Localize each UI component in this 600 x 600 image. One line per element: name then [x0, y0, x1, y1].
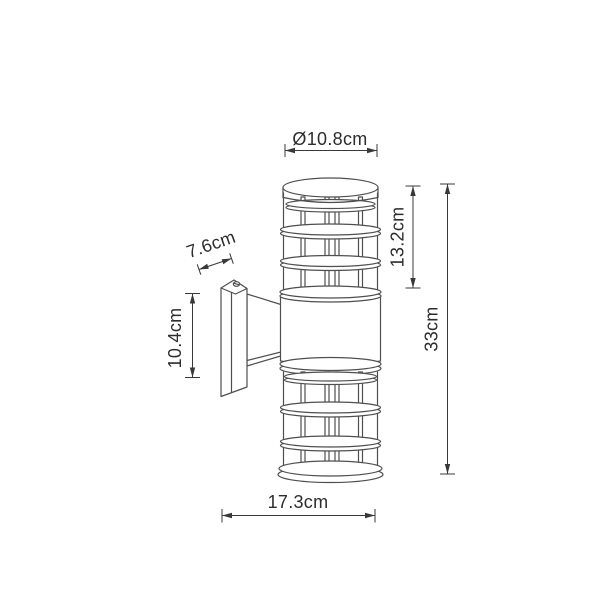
- dimension-label-upper-section-height: 13.2cm: [388, 207, 408, 268]
- dimension-upper-section-height: 13.2cm: [388, 186, 421, 288]
- lamp-upper-cage: [281, 193, 381, 298]
- dimension-label-top-diameter: Ø10.8cm: [292, 129, 367, 149]
- dimension-top-diameter: Ø10.8cm: [285, 129, 377, 157]
- lamp-top-cap: [283, 178, 378, 203]
- lamp-base: [278, 461, 383, 483]
- product-dimension-drawing: Ø10.8cm 13.2cm 33cm 10.4cm 7.6cm: [0, 0, 600, 600]
- bracket-wall-plate: [221, 280, 247, 397]
- wall-bracket: [221, 280, 284, 397]
- bracket-arm: [247, 294, 284, 366]
- dimension-bracket-depth: 7.6cm: [184, 227, 238, 275]
- drawing-canvas: Ø10.8cm 13.2cm 33cm 10.4cm 7.6cm: [0, 0, 600, 600]
- lamp-body: [278, 178, 383, 483]
- lamp-middle-band: [280, 286, 381, 375]
- dimension-overall-depth: 17.3cm: [222, 492, 375, 523]
- lamp-lower-cage: [281, 372, 381, 470]
- mounting-screw: [233, 282, 239, 287]
- dimension-label-overall-depth: 17.3cm: [268, 492, 329, 512]
- dimension-label-bracket-height: 10.4cm: [165, 308, 185, 369]
- dimension-total-height: 33cm: [422, 184, 456, 474]
- dimension-label-total-height: 33cm: [422, 306, 442, 351]
- dimension-bracket-height: 10.4cm: [165, 294, 200, 378]
- dimension-label-bracket-depth: 7.6cm: [184, 227, 238, 262]
